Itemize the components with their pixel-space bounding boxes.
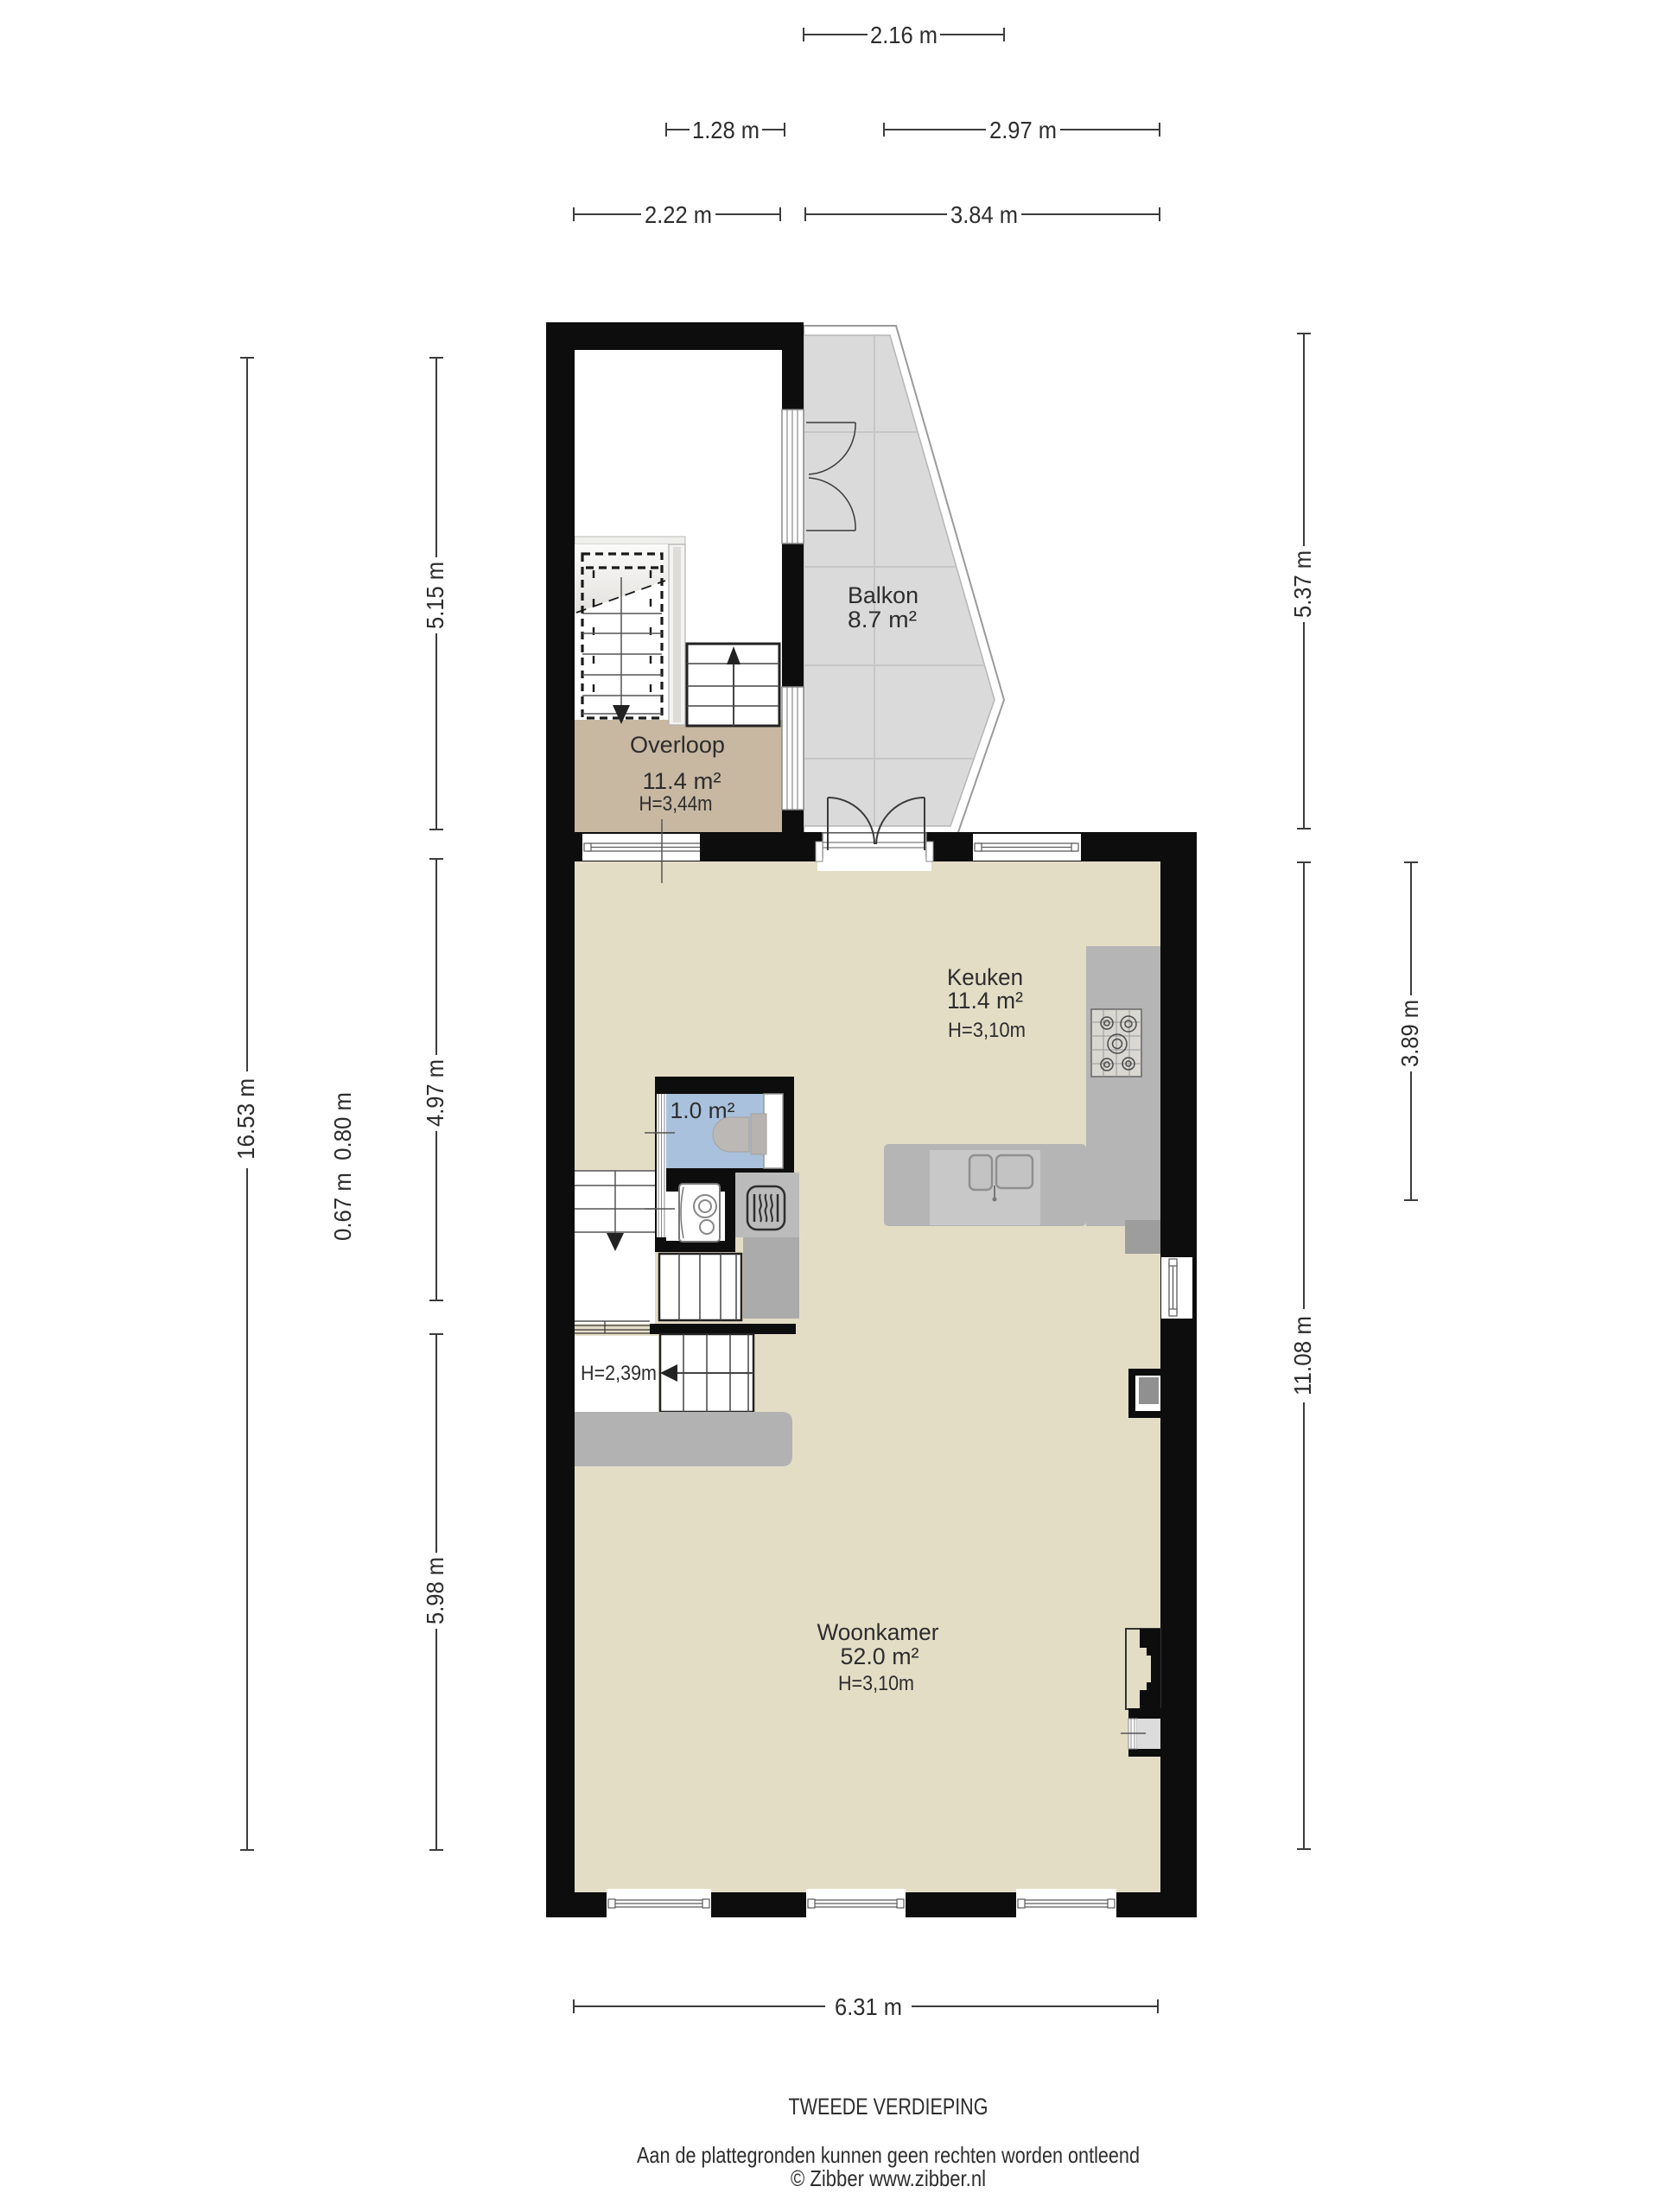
- svg-text:5.15 m: 5.15 m: [422, 562, 448, 629]
- svg-text:5.37 m: 5.37 m: [1289, 550, 1316, 618]
- svg-text:© Zibber www.zibber.nl: © Zibber www.zibber.nl: [791, 2165, 986, 2191]
- svg-text:8.7 m²: 8.7 m²: [848, 607, 917, 632]
- svg-text:2.22 m: 2.22 m: [645, 201, 712, 228]
- svg-text:H=2,39m: H=2,39m: [581, 1362, 657, 1385]
- svg-text:6.31 m: 6.31 m: [835, 1993, 902, 2020]
- svg-text:4.97 m: 4.97 m: [422, 1059, 448, 1127]
- svg-text:3.84 m: 3.84 m: [950, 201, 1018, 228]
- svg-text:16.53 m: 16.53 m: [232, 1078, 259, 1160]
- svg-text:Aan de plattegronden kunnen ge: Aan de plattegronden kunnen geen rechten…: [637, 2142, 1140, 2168]
- svg-text:H=3,10m: H=3,10m: [838, 1672, 914, 1695]
- svg-text:H=3,10m: H=3,10m: [948, 1019, 1026, 1042]
- svg-text:5.98 m: 5.98 m: [422, 1557, 448, 1624]
- svg-text:H=3,44m: H=3,44m: [639, 792, 713, 816]
- svg-text:0.67 m 0.80 m: 0.67 m 0.80 m: [329, 1092, 356, 1241]
- svg-text:2.97 m: 2.97 m: [989, 117, 1057, 143]
- svg-text:Keuken: Keuken: [947, 964, 1023, 990]
- svg-text:2.16 m: 2.16 m: [870, 22, 938, 48]
- svg-text:1.28 m: 1.28 m: [692, 117, 760, 143]
- svg-text:Woonkamer: Woonkamer: [817, 1619, 939, 1645]
- svg-text:Balkon: Balkon: [848, 582, 918, 608]
- svg-text:11.4 m²: 11.4 m²: [947, 988, 1023, 1014]
- svg-text:3.89 m: 3.89 m: [1396, 1000, 1423, 1067]
- svg-text:11.08 m: 11.08 m: [1289, 1316, 1316, 1395]
- svg-text:Overloop: Overloop: [630, 732, 725, 758]
- svg-text:11.4 m²: 11.4 m²: [643, 768, 721, 794]
- svg-text:TWEEDE VERDIEPING: TWEEDE VERDIEPING: [789, 2094, 988, 2120]
- svg-text:52.0 m²: 52.0 m²: [841, 1643, 919, 1669]
